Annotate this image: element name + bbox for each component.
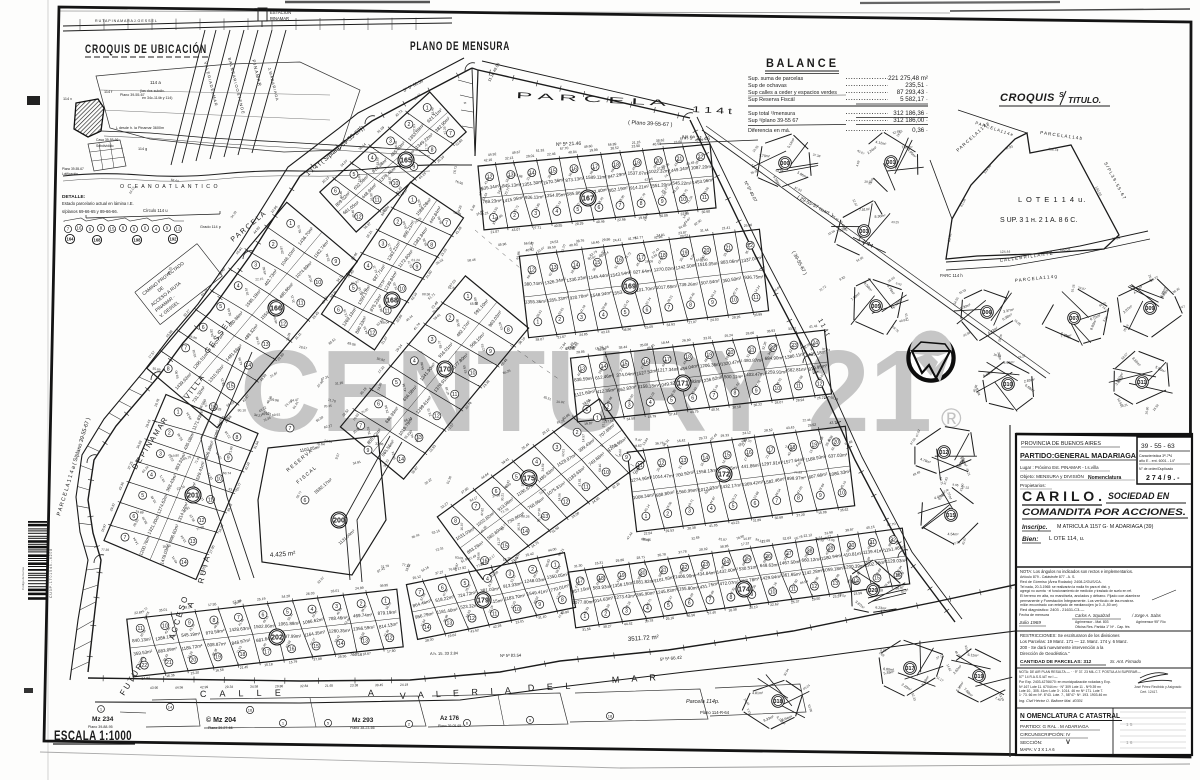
svg-text:16: 16 (248, 707, 253, 712)
svg-text:Cert. 12417.: Cert. 12417. (1140, 690, 1158, 694)
svg-text:179: 179 (477, 598, 489, 605)
svg-text:1: 1 (466, 294, 469, 300)
svg-text:4: 4 (367, 263, 370, 269)
svg-text:Grado 114 p: Grado 114 p (200, 225, 221, 229)
svg-text:29.01: 29.01 (526, 154, 535, 159)
svg-text:936.75m²: 936.75m² (744, 274, 764, 280)
svg-text:3: 3 (254, 263, 257, 269)
svg-text:34.59: 34.59 (541, 463, 545, 471)
svg-text:Plano 38-23-66: Plano 38-23-66 (350, 726, 375, 730)
svg-text:6: 6 (304, 498, 307, 504)
svg-text:3.06m²: 3.06m² (1003, 360, 1015, 364)
svg-text:12: 12 (176, 227, 181, 232)
svg-text:171: 171 (677, 381, 689, 388)
svg-text:Lotificación: Lotificación (62, 172, 78, 176)
svg-text:4.54m²: 4.54m² (948, 532, 960, 536)
svg-text:5: 5 (219, 304, 222, 310)
svg-text:3: 3 (159, 452, 162, 458)
svg-text:Sup ˢ/plano 39-55 67: Sup ˢ/plano 39-55 67 (748, 118, 798, 124)
svg-text:6: 6 (337, 307, 340, 313)
svg-text:C A R I L O .: C A R I L O . (1022, 489, 1102, 504)
svg-text:5: 5 (352, 285, 355, 291)
svg-text:José Pérez Recibido y Asignado: José Pérez Recibido y Asignado (1134, 685, 1181, 689)
svg-text:1355.36m²: 1355.36m² (525, 299, 547, 305)
svg-text:NOTA: Los ángulos no indicados: NOTA: Los ángulos no indicados son recto… (1020, 569, 1133, 574)
svg-text:Az 176: Az 176 (440, 716, 460, 722)
svg-text:N OMENCLATURA C ATASTRAL: N OMENCLATURA C ATASTRAL (1020, 711, 1121, 720)
svg-text:1403.47m²: 1403.47m² (744, 371, 766, 377)
svg-text:7: 7 (712, 393, 715, 399)
svg-text:4: 4 (710, 506, 713, 512)
svg-text:11: 11 (385, 308, 390, 314)
svg-text:2: 2 (576, 430, 579, 436)
svg-text:8: 8 (507, 327, 510, 333)
svg-text:10: 10 (603, 470, 609, 476)
svg-text:30.45: 30.45 (375, 683, 384, 687)
svg-text:27.71: 27.71 (533, 225, 542, 230)
svg-text:5: 5 (352, 172, 355, 178)
svg-text:7: 7 (289, 426, 292, 432)
svg-text:174: 174 (738, 587, 750, 594)
svg-text:SECCIÓN:: SECCIÓN: (1020, 739, 1042, 745)
svg-text:192: 192 (170, 237, 178, 242)
svg-text:35.73: 35.73 (517, 522, 521, 530)
svg-text:682.81m²: 682.81m² (787, 367, 807, 373)
svg-text:167: 167 (582, 196, 594, 203)
svg-text:301: 301 (887, 160, 896, 166)
svg-text:10: 10 (774, 386, 780, 392)
svg-text:6: 6 (691, 395, 694, 401)
svg-text:9: 9 (661, 199, 664, 205)
svg-text:5: 5 (576, 207, 579, 213)
svg-text:30.09: 30.09 (659, 213, 668, 218)
svg-text:305: 305 (872, 304, 881, 310)
svg-text:10: 10 (216, 477, 222, 483)
svg-text:7: 7 (124, 535, 127, 541)
svg-text:15: 15 (228, 384, 234, 390)
svg-text:3: 3 (431, 337, 434, 343)
svg-text:164: 164 (67, 237, 75, 242)
svg-text:1 6: 1 6 (1126, 740, 1133, 745)
svg-text:21.87: 21.87 (490, 229, 499, 234)
svg-text:9: 9 (415, 264, 418, 270)
svg-text:22.46: 22.46 (547, 152, 556, 157)
svg-text:Plano 39-55-67: Plano 39-55-67 (62, 167, 84, 171)
svg-text:PARC 114 h: PARC 114 h (940, 273, 963, 278)
svg-text:Sup Reserva Fiscál: Sup Reserva Fiscál (748, 97, 795, 103)
svg-text:300: 300 (781, 161, 790, 167)
svg-text:42.49: 42.49 (430, 107, 435, 115)
svg-text:7: 7 (667, 305, 670, 311)
svg-text:200: 200 (333, 518, 345, 525)
svg-text:29.86: 29.86 (275, 684, 284, 688)
svg-text:57° 14 R.A.S.S./AT m² l —: 57° 14 R.A.S.S./AT m² l — (1019, 675, 1058, 679)
svg-text:80.10: 80.10 (238, 408, 246, 412)
svg-text:170: 170 (439, 367, 451, 374)
svg-text:3: 3 (381, 241, 384, 247)
svg-text:M ATRICULA 1157 G· M ADARIAG: M ATRICULA 1157 G· M ADARIAGA (39) (1057, 524, 1154, 530)
svg-text:/ Jorge A. Salas: / Jorge A. Salas (1131, 613, 1161, 618)
svg-text:en 34c-114b y 114): en 34c-114b y 114) (142, 96, 172, 100)
svg-text:Ing. Civil Héctor O. Ballone: Ing. Civil Héctor O. Ballone Mat. 40301 (1019, 699, 1083, 703)
svg-text:2: 2 (396, 219, 399, 225)
svg-text:6: 6 (645, 307, 648, 313)
svg-text:41.27: 41.27 (497, 537, 501, 545)
svg-text:10: 10 (399, 286, 405, 292)
svg-text:35.02: 35.02 (618, 449, 622, 457)
svg-text:16.07: 16.07 (460, 522, 464, 530)
svg-text:Sr. Ant. Firmado: Sr. Ant. Firmado (1110, 659, 1142, 664)
svg-text:12: 12 (563, 499, 569, 505)
svg-text:77.99: 77.99 (794, 470, 802, 474)
svg-text:V: V (1066, 740, 1070, 746)
svg-text:739.26m²: 739.26m² (679, 282, 699, 288)
svg-text:2: 2 (449, 315, 452, 321)
svg-text:Oficina Res. Partida 1° Nº - C: Oficina Res. Partida 1° Nº - Cap. fés (1075, 625, 1130, 629)
svg-text:6: 6 (753, 501, 756, 507)
svg-text:Plano 39-05-65: Plano 39-05-65 (438, 724, 461, 728)
svg-text:43.25: 43.25 (891, 220, 899, 224)
svg-text:CIRCUNSCRIPCIÓN: IV: CIRCUNSCRIPCIÓN: IV (1020, 731, 1071, 737)
svg-text:15: 15 (502, 544, 508, 550)
svg-text:12: 12 (387, 636, 393, 642)
svg-text:1· 73. 66 m² Nº. 8°43. Lote. 7: 1· 73. 66 m² Nº. 8°43. Lote. 7., 58°47· … (1019, 693, 1108, 697)
svg-text:47.82: 47.82 (480, 508, 484, 516)
svg-text:RESTRICCIONES: Se escriturar: RESTRICCIONES: Se escrituraron de los di… (1020, 633, 1120, 638)
svg-text:11: 11 (796, 384, 801, 390)
svg-text:303: 303 (860, 229, 869, 235)
svg-text:Red de Górmiso (Área Rodado):: Red de Górmiso (Área Rodado): 2408-2/GUS… (1020, 580, 1102, 584)
svg-text:34.58: 34.58 (250, 685, 259, 689)
svg-text:agregó no cuenta · el funciona: agregó no cuenta · el funcionamiento de … (1020, 589, 1132, 593)
svg-text:11: 11 (753, 295, 758, 301)
svg-text:172: 172 (718, 472, 730, 479)
svg-text:2: 2 (558, 317, 561, 323)
svg-text:1: 1 (289, 221, 292, 227)
svg-text:7.92m²: 7.92m² (902, 145, 914, 149)
svg-text:14.87: 14.87 (743, 536, 752, 541)
svg-text:21: 21 (166, 660, 172, 666)
svg-text:13: 13 (447, 621, 453, 627)
svg-text:Mz 234: Mz 234 (92, 716, 114, 723)
svg-text:10: 10 (393, 181, 399, 187)
svg-text:114 f: 114 f (104, 90, 113, 94)
svg-text:4: 4 (535, 460, 538, 466)
svg-text:8: 8 (236, 435, 239, 441)
svg-text:9: 9 (625, 455, 628, 461)
svg-text:Lugar : Próximo Est. PINAMAR -: Lugar : Próximo Est. PINAMAR - t.s.vílla (1020, 465, 1099, 470)
svg-text:5: 5 (141, 493, 144, 499)
svg-text:8: 8 (431, 148, 434, 154)
svg-text:14.57: 14.57 (581, 434, 585, 442)
svg-text:8: 8 (561, 598, 564, 604)
svg-text:20.35: 20.35 (324, 404, 332, 408)
svg-text:DETALLE:: DETALLE: (62, 194, 86, 200)
svg-text:22.15: 22.15 (255, 277, 263, 282)
svg-text:1: 1 (411, 197, 414, 203)
svg-text:9: 9 (819, 493, 822, 499)
svg-text:9: 9 (538, 602, 541, 608)
svg-text:ESCALA 1:1000: ESCALA 1:1000 (54, 728, 132, 743)
svg-text:9: 9 (367, 448, 370, 454)
svg-text:3: 3 (580, 315, 583, 321)
svg-text:30.68: 30.68 (701, 209, 710, 214)
svg-text:1537.07m²: 1537.07m² (628, 171, 650, 176)
svg-text:312: 312 (940, 450, 949, 456)
svg-text:65.50: 65.50 (470, 301, 479, 306)
svg-text:320: 320 (869, 588, 878, 594)
svg-text:8: 8 (797, 496, 800, 502)
svg-text:Nª 5ª 83.54: Nª 5ª 83.54 (500, 653, 522, 658)
svg-text:47.81: 47.81 (578, 478, 582, 486)
svg-text:202: 202 (271, 635, 283, 642)
svg-text:22: 22 (141, 663, 147, 669)
svg-text:13: 13 (190, 539, 196, 545)
svg-text:310: 310 (1004, 382, 1013, 388)
svg-text:1: 1 (596, 415, 599, 421)
svg-text:Estado parcelario actual en lá: Estado parcelario actual en lámina I.E. (62, 201, 134, 206)
svg-text:MAPA: V 3 X 1 A 6: MAPA: V 3 X 1 A 6 (1020, 747, 1055, 752)
svg-text:L desde h. la Pinamar 3600m: L desde h. la Pinamar 3600m (116, 126, 164, 130)
svg-text:87 293,43 ·: 87 293,43 · (897, 89, 928, 96)
svg-text:168: 168 (94, 238, 102, 243)
svg-text:Subdividido: Subdividido (96, 144, 114, 148)
svg-text:3: 3 (628, 402, 631, 408)
svg-text:Julio 1969: Julio 1969 (1018, 620, 1041, 626)
svg-text:14.56: 14.56 (557, 493, 561, 501)
svg-text:NOTA: DE AIR PLAN RESULTA — ·: NOTA: DE AIR PLAN RESULTA — · · 9° 37. 2… (1019, 670, 1141, 674)
svg-text:1077.80m²: 1077.80m² (572, 599, 594, 605)
svg-text:9: 9 (334, 259, 337, 265)
svg-text:9: 9 (412, 164, 415, 170)
svg-text:Plano 114-R-64: Plano 114-R-64 (700, 710, 730, 715)
svg-text:12: 12 (199, 518, 205, 524)
svg-text:Círculo 114 u: Círculo 114 u (143, 208, 168, 213)
svg-text:17: 17 (264, 649, 270, 655)
svg-text:4: 4 (150, 472, 153, 478)
svg-text:42.16: 42.16 (484, 158, 493, 163)
svg-text:2 7 4 / 9 . -: 2 7 4 / 9 . - (1146, 475, 1180, 482)
svg-text:1: 1 (536, 320, 539, 326)
svg-text:Sup. suma de parcelas: Sup. suma de parcelas (748, 76, 803, 82)
svg-text:© Mz 204: © Mz 204 (206, 716, 236, 724)
svg-text:201: 201 (187, 493, 199, 500)
svg-text:Mz 293: Mz 293 (352, 717, 374, 724)
svg-text:306: 306 (983, 310, 992, 316)
svg-text:30.21: 30.21 (500, 493, 504, 501)
svg-text:8: 8 (454, 519, 457, 525)
svg-text:Dirección de Geodéstica.": Dirección de Geodéstica." (1020, 651, 1070, 656)
svg-text:3: 3 (555, 445, 558, 451)
svg-text:ESTACION: ESTACION (270, 10, 291, 15)
svg-text:Red diagnóstico: 2403 - 21631-: Red diagnóstico: 2403 - 21631-C3.— (1020, 607, 1084, 612)
svg-text:10: 10 (514, 607, 520, 613)
svg-text:4: 4 (371, 155, 374, 161)
svg-text:PROVINCIA DE BUENOS AIRES: PROVINCIA DE BUENOS AIRES (1021, 441, 1101, 447)
svg-text:58.10: 58.10 (598, 463, 602, 471)
svg-text:76.64: 76.64 (316, 442, 325, 447)
svg-text:15: 15 (313, 644, 319, 650)
svg-text:Código de barras: Código de barras (21, 566, 25, 590)
svg-text:4: 4 (413, 359, 416, 365)
svg-text:235,51 ·: 235,51 · (905, 82, 928, 89)
svg-text:SOCIEDAD EN: SOCIEDAD EN (1108, 491, 1170, 501)
svg-text:1: 1 (177, 410, 180, 416)
svg-text:CANTIDAD DE PARCELAS: 312: CANTIDAD DE PARCELAS: 312 (1020, 659, 1092, 665)
svg-text:Plano 39-27-66: Plano 39-27-66 (208, 726, 233, 730)
svg-text:6: 6 (597, 205, 600, 211)
svg-text:16: 16 (289, 647, 295, 653)
svg-text:El terreno en alta, no mandíse: El terreno en alta, no mandísela, anclad… (1020, 594, 1141, 598)
svg-text:6: 6 (334, 189, 337, 195)
svg-text:5: 5 (395, 380, 398, 386)
svg-text:165: 165 (400, 158, 412, 165)
svg-text:Los Parcelas: 19 Manz. 171 — 1: Los Parcelas: 19 Manz. 171 — 12. Manz. 1… (1020, 639, 1128, 644)
svg-text:13: 13 (362, 638, 368, 644)
svg-text:27.01: 27.01 (412, 124, 417, 132)
svg-text:3: 3 (389, 139, 392, 145)
svg-text:Parcela 114p.: Parcela 114p. (686, 699, 720, 705)
svg-text:40.85: 40.85 (554, 223, 563, 228)
svg-text:24.19: 24.19 (400, 683, 409, 687)
svg-text:22.96: 22.96 (617, 217, 626, 222)
svg-text:7: 7 (184, 346, 187, 352)
svg-text:114 a: 114 a (150, 80, 161, 85)
svg-text:53.09: 53.09 (375, 157, 380, 165)
svg-text:124.44: 124.44 (1000, 250, 1011, 254)
svg-text:C A L L E: C A L L E (200, 687, 287, 699)
svg-text:4: 4 (649, 400, 652, 406)
svg-text:10: 10 (315, 280, 321, 286)
svg-text:43.07: 43.07 (511, 227, 520, 232)
svg-text:Diferencia en má.: Diferencia en má. (748, 128, 790, 134)
svg-text:C U 3 P - 1 7 0 1 5 4 5 - - 4: C U 3 P - 1 7 0 1 5 4 5 - - 4 2 0 8 (49, 549, 53, 598)
svg-text:19.99: 19.99 (589, 148, 598, 153)
svg-text:936.11m²: 936.11m² (525, 194, 544, 200)
svg-text:TITULO.: TITULO. (1068, 95, 1101, 105)
svg-text:14: 14 (181, 560, 187, 566)
svg-text:Sup de ochavas: Sup de ochavas (748, 83, 787, 89)
svg-text:32.13: 32.13 (505, 156, 514, 161)
svg-text:221 275,48 m²: 221 275,48 m² (888, 75, 928, 82)
svg-text:0,36 ·: 0,36 · (912, 127, 928, 134)
svg-text:319: 319 (975, 674, 984, 680)
svg-text:Objeto: MENSURA y DIVISIÓN: Objeto: MENSURA y DIVISIÓN (1020, 473, 1084, 479)
svg-text:11: 11 (702, 195, 707, 201)
svg-text:14: 14 (168, 704, 173, 709)
svg-text:12: 12 (280, 321, 286, 327)
svg-text:68.74: 68.74 (223, 471, 231, 475)
svg-text:PINAMAR: PINAMAR (270, 16, 289, 21)
svg-text:Casa 39-55-66: Casa 39-55-66 (96, 138, 119, 142)
svg-text:11: 11 (452, 392, 457, 398)
svg-text:4: 4 (555, 209, 558, 215)
svg-text:A h. 15. 33 2.84: A h. 15. 33 2.84 (430, 650, 459, 656)
svg-text:7: 7 (449, 131, 452, 137)
svg-text:307: 307 (1070, 316, 1079, 322)
svg-text:12.01: 12.01 (561, 449, 565, 457)
svg-text:500.11m²: 500.11m² (724, 374, 743, 379)
svg-text:12: 12 (817, 381, 823, 387)
svg-text:318: 318 (774, 699, 783, 705)
svg-text:33.86: 33.86 (375, 442, 384, 447)
svg-text:42.40: 42.40 (339, 190, 344, 198)
svg-text:s/planos 69-66-65 y 89-66-66.: s/planos 69-66-65 y 89-66-66. (62, 209, 118, 214)
svg-text:13: 13 (263, 342, 269, 348)
svg-text:3: 3 (688, 509, 691, 515)
svg-text:14: 14 (522, 529, 528, 535)
svg-text:11: 11 (298, 301, 303, 307)
svg-text:PLANO DE MENSURA: PLANO DE MENSURA (410, 41, 510, 53)
svg-text:PARTIDO:GENERAL MADARIAGA: PARTIDO:GENERAL MADARIAGA (1020, 453, 1136, 460)
svg-text:Artículo 879 - Catástrofe 877: Artículo 879 - Catástrofe 877 - A. S. (1020, 575, 1075, 579)
svg-text:10: 10 (839, 491, 845, 497)
svg-text:N° de orden/Duplicado: N° de orden/Duplicado (1139, 467, 1173, 471)
svg-text:39 - 55 - 63: 39 - 55 - 63 (1141, 443, 1175, 450)
svg-text:Inscripc.: Inscripc. (1022, 524, 1048, 531)
svg-text:7: 7 (474, 504, 477, 510)
svg-text:312 186,36 ·: 312 186,36 · (893, 110, 928, 117)
svg-text:11: 11 (583, 485, 588, 491)
svg-text:1280.35m²: 1280.35m² (329, 628, 351, 634)
svg-text:2: 2 (407, 122, 410, 128)
svg-text:Plano 39-55-67: Plano 39-55-67 (120, 93, 145, 97)
svg-text:20: 20 (191, 657, 197, 663)
svg-text:28.02: 28.02 (864, 180, 872, 184)
svg-text:12: 12 (356, 214, 362, 220)
svg-text:4.81m²: 4.81m² (752, 691, 764, 695)
svg-text:Carlos A. Squalzad: Carlos A. Squalzad (1075, 613, 1111, 618)
svg-text:14: 14 (338, 641, 344, 647)
svg-text:22.48: 22.48 (802, 418, 810, 423)
svg-text:8: 8 (167, 367, 170, 373)
svg-text:1 5: 1 5 (1126, 722, 1133, 727)
svg-text:88.26: 88.26 (521, 515, 530, 519)
svg-text:57.13: 57.13 (602, 419, 606, 427)
svg-text:32.84: 32.84 (300, 684, 309, 688)
svg-text:L OTE 114, u.: L OTE 114, u. (1049, 536, 1085, 542)
svg-text:40.46: 40.46 (596, 219, 605, 224)
svg-text:684.90m²: 684.90m² (765, 355, 785, 361)
svg-text:PARTIDO: G RAL . M ADARIAGA: PARTIDO: G RAL . M ADARIAGA (1020, 724, 1090, 729)
svg-text:50.36: 50.36 (394, 140, 399, 148)
svg-text:Propietarios:: Propietarios: (1020, 483, 1046, 488)
svg-text:1129.03m²: 1129.03m² (885, 558, 907, 564)
svg-text:L O T E 1 1 4 u.: L O T E 1 1 4 u. (1018, 195, 1086, 204)
svg-text:7: 7 (445, 220, 448, 226)
svg-text:315: 315 (947, 513, 956, 519)
svg-text:2: 2 (168, 431, 171, 437)
svg-text:169: 169 (624, 284, 636, 291)
svg-text:Bien:: Bien: (1022, 536, 1038, 543)
svg-text:5: 5 (670, 398, 673, 404)
svg-text:7: 7 (775, 498, 778, 504)
svg-text:2: 2 (666, 511, 669, 517)
svg-text:58.66: 58.66 (476, 552, 480, 560)
svg-text:317: 317 (906, 666, 915, 672)
svg-text:81.24: 81.24 (411, 258, 419, 262)
svg-text:3: 3 (534, 211, 537, 217)
svg-text:15: 15 (110, 227, 115, 232)
svg-text:14: 14 (424, 625, 430, 631)
svg-text:15.05: 15.05 (357, 174, 362, 182)
svg-text:1589.11m²: 1589.11m² (586, 174, 608, 180)
svg-text:9: 9 (489, 349, 492, 355)
svg-text:9: 9 (227, 456, 230, 462)
svg-text:480.87m²: 480.87m² (743, 358, 763, 363)
svg-text:5: 5 (732, 504, 735, 510)
svg-text:6: 6 (202, 325, 205, 331)
